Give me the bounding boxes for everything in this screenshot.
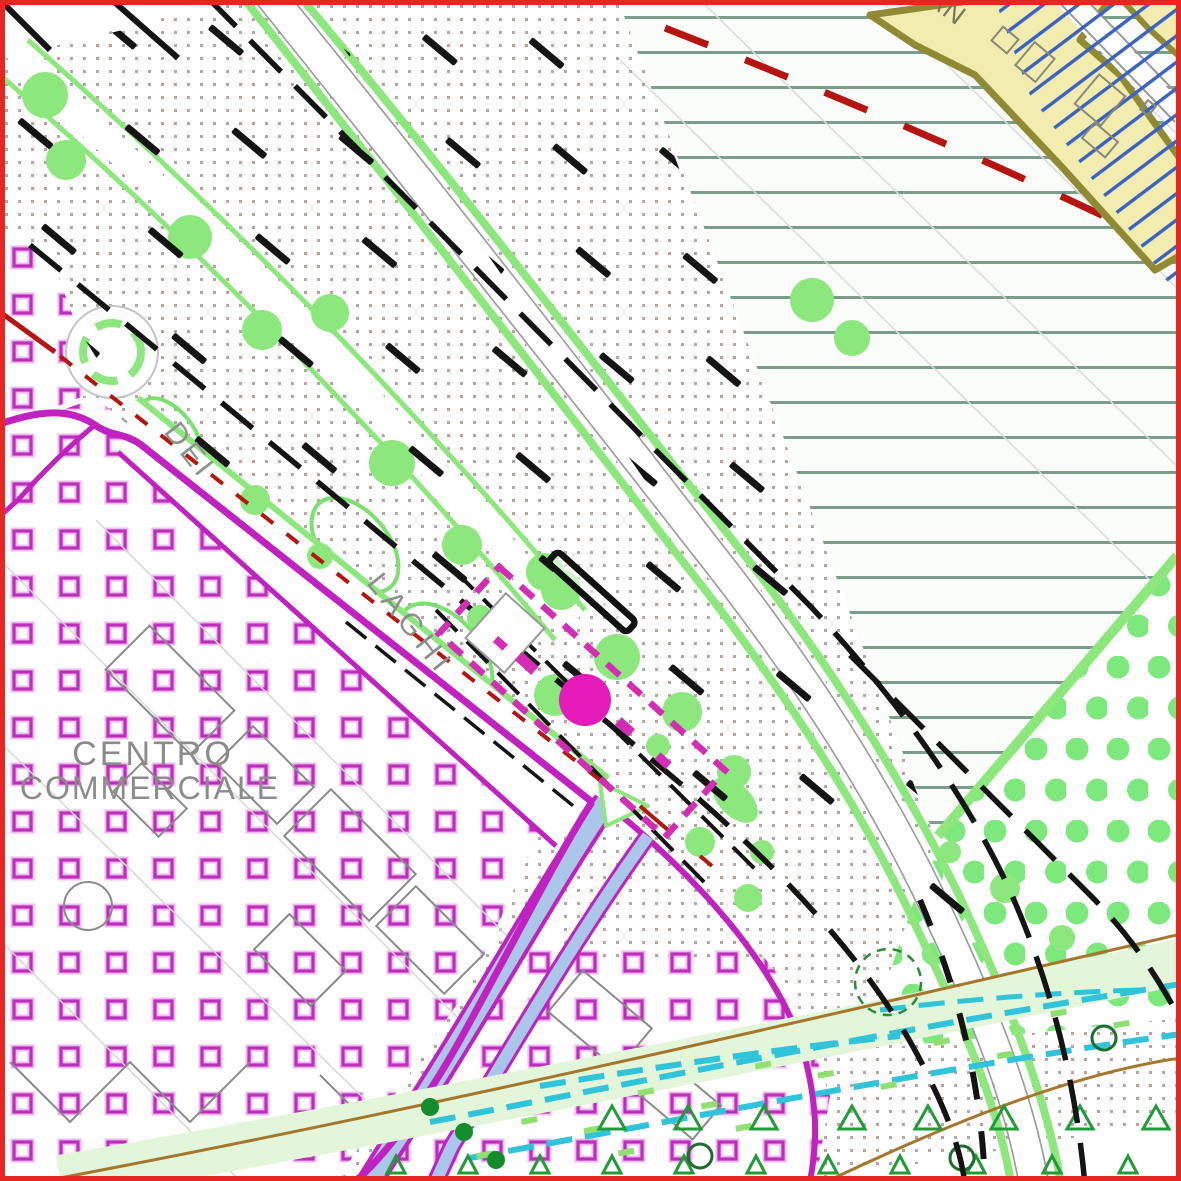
map-canvas[interactable]: CENTRO COMMERCIALE DEI LAGHI AN [0,0,1181,1181]
label-centro: CENTRO [72,735,234,773]
zoning-map: CENTRO COMMERCIALE DEI LAGHI AN [0,0,1181,1181]
parcel-magenta-dot [559,674,611,726]
label-commerciale: COMMERCIALE [20,770,280,806]
